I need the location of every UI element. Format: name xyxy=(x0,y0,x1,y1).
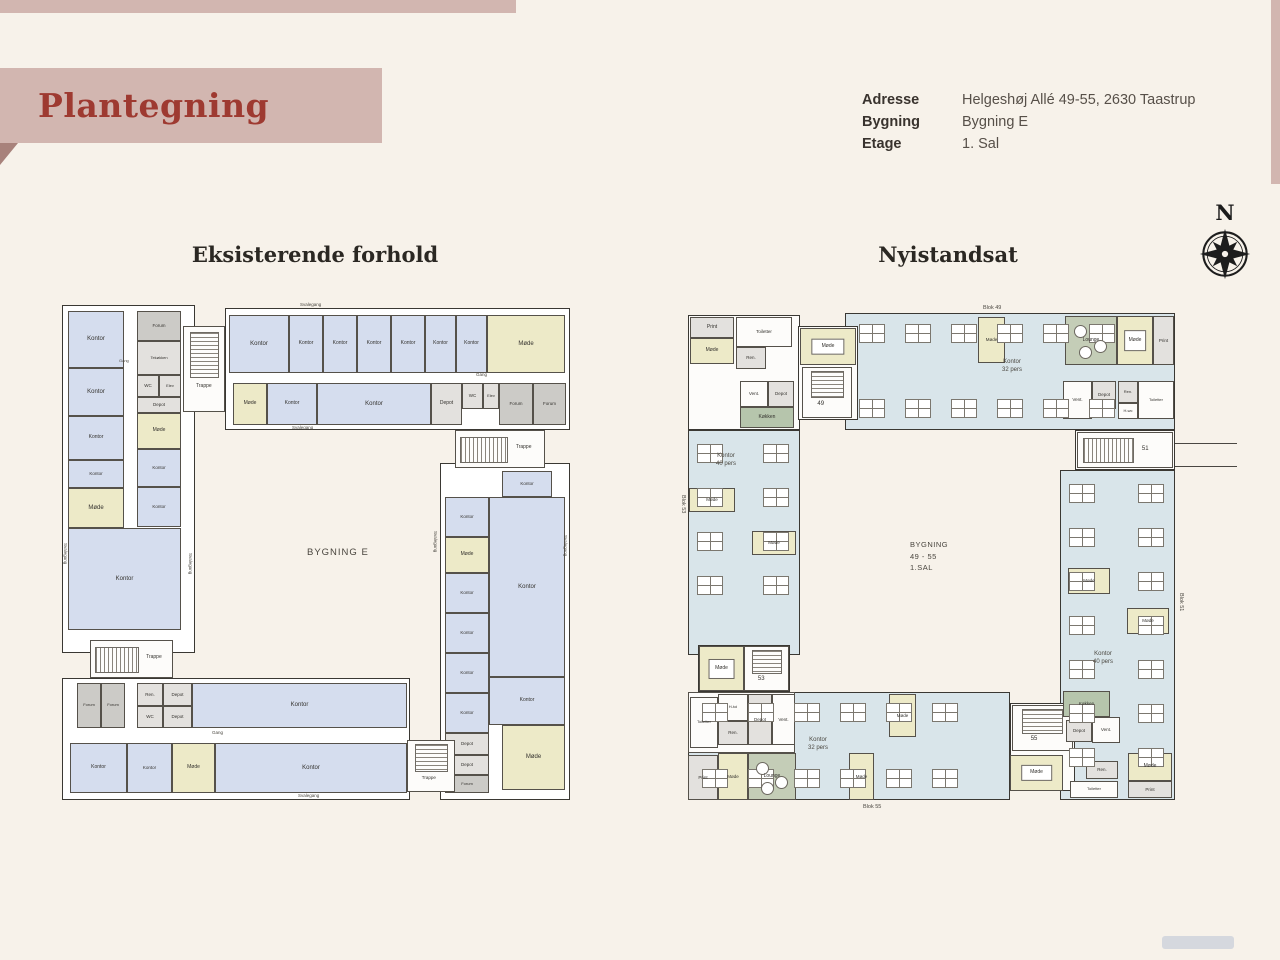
stairwell: 53 xyxy=(744,646,789,691)
stair-label: Trappe xyxy=(196,384,212,390)
room-label: Lounge xyxy=(764,774,781,780)
desk-cluster xyxy=(886,769,912,788)
info-value-bygning: Bygning E xyxy=(962,111,1280,133)
room: Kontor xyxy=(215,743,407,793)
corridor-connector xyxy=(1175,443,1237,444)
compass-north-label: N xyxy=(1199,200,1251,225)
compass-rose-icon xyxy=(1199,228,1251,280)
room-label: Kontor xyxy=(464,341,479,347)
plan-label: Blok 55 xyxy=(863,804,881,811)
room-label: Lounge xyxy=(1083,338,1100,344)
room: Kontor xyxy=(445,497,489,537)
room: Kontor xyxy=(70,743,127,793)
room: Kontor xyxy=(289,315,323,373)
plan-label: Svalegang xyxy=(432,531,438,552)
plan-label: Svalegang xyxy=(562,535,568,556)
stair-label: 53 xyxy=(758,676,765,683)
plan-label: Svalegang xyxy=(298,793,319,799)
room-label: Møde xyxy=(727,774,739,779)
room-label: Kontor xyxy=(302,765,320,772)
top-accent-bar xyxy=(0,0,516,13)
desk-cluster xyxy=(697,532,723,551)
stairwell: 49 xyxy=(802,367,852,418)
room-label: Møde xyxy=(244,401,257,407)
room-label: Kontor xyxy=(365,401,383,408)
room: H-wc xyxy=(1118,403,1138,419)
section-title-existing: Eksisterende forhold xyxy=(115,242,515,267)
room: Møde xyxy=(445,537,489,573)
room: Kontor xyxy=(68,416,124,460)
room-label: Møde xyxy=(768,540,780,545)
room: Kontor xyxy=(68,368,124,416)
room-label: Køkken xyxy=(1079,701,1094,706)
room: Depot xyxy=(163,706,192,728)
room-label: Møde xyxy=(856,774,868,779)
room-label: WC xyxy=(146,714,154,719)
room-label: Print xyxy=(1159,338,1168,343)
room-label: Print xyxy=(698,775,707,780)
room: Kontor xyxy=(68,460,124,488)
room: Depot xyxy=(431,383,462,425)
room: Møde xyxy=(502,725,565,790)
plan-label: Blok 51 xyxy=(1177,593,1184,611)
room-label: Depot xyxy=(171,692,183,697)
room-label: Forum xyxy=(83,703,95,708)
room: Møde xyxy=(1117,316,1153,365)
room: Forum xyxy=(137,311,181,341)
room-label: Elev xyxy=(487,394,495,399)
room-label: Kontor xyxy=(143,765,156,770)
desk-cluster xyxy=(859,324,885,343)
room-label: H-toi xyxy=(729,705,737,710)
room: WC xyxy=(137,706,163,728)
desk-cluster xyxy=(840,703,866,722)
room: Forum xyxy=(499,383,533,425)
room: Tekøkken xyxy=(137,341,181,375)
stairs-icon xyxy=(1022,709,1063,734)
plan-label: Svalegang xyxy=(187,553,193,574)
room-label: Kontor xyxy=(367,341,382,347)
room: Kontor xyxy=(323,315,357,373)
desk-cluster xyxy=(951,324,977,343)
desk-cluster xyxy=(1043,399,1069,418)
room-label: Forum xyxy=(107,703,119,708)
room-label: Kontor xyxy=(116,576,134,583)
room-label: Forum xyxy=(509,401,522,406)
room-label: Møde xyxy=(526,754,541,761)
banner-fold xyxy=(0,143,18,165)
room-label: Møde xyxy=(1129,338,1142,344)
room: Ren. xyxy=(736,347,766,369)
desk-cluster xyxy=(1138,484,1164,503)
desk-cluster xyxy=(932,769,958,788)
stairs-icon xyxy=(460,437,508,463)
room-label: Depot xyxy=(754,717,766,722)
room-label: Kontor xyxy=(520,481,533,486)
room-label: Depot xyxy=(461,762,473,767)
room-label: Møde xyxy=(1144,764,1157,770)
plan-label: Kontor 40 pers xyxy=(1093,651,1113,667)
room: Print xyxy=(1128,781,1172,798)
stair-label: 49 xyxy=(817,401,824,408)
room-label: Ren. xyxy=(728,730,738,735)
room-label: Møde xyxy=(1083,578,1095,583)
stairwell: Trappe xyxy=(455,430,545,468)
room-label: Toiletter xyxy=(756,329,772,334)
desk-cluster xyxy=(763,444,789,463)
info-row-bygning: Bygning Bygning E xyxy=(862,111,1280,133)
room-label: Forum xyxy=(152,323,165,328)
room-label: Møde xyxy=(706,348,719,354)
info-value-adresse: Helgeshøj Allé 49-55, 2630 Taastrup xyxy=(962,89,1280,111)
room-label: Kontor xyxy=(299,341,314,347)
desk-cluster xyxy=(1138,704,1164,723)
room: Kontor xyxy=(357,315,391,373)
room: Kontor xyxy=(489,497,565,677)
room: Forum xyxy=(101,683,125,728)
room: Kontor xyxy=(445,693,489,733)
info-label-etage: Etage xyxy=(862,133,962,155)
room: Forum xyxy=(77,683,101,728)
room-label: Kontor xyxy=(91,765,106,771)
room-label: Kontor xyxy=(89,435,104,441)
info-panel: Adresse Helgeshøj Allé 49-55, 2630 Taast… xyxy=(843,78,1280,165)
room-label: Forum xyxy=(543,401,556,406)
desk-cluster xyxy=(697,576,723,595)
room: Kontor xyxy=(127,743,172,793)
info-label-adresse: Adresse xyxy=(862,89,962,111)
room: Kontor xyxy=(456,315,487,373)
room-label: Møde xyxy=(518,341,533,348)
stairwell: 51 xyxy=(1077,432,1173,468)
room-label: Depot xyxy=(440,401,453,407)
plan-label: Blok 53 xyxy=(679,495,686,513)
room-label: Kontor xyxy=(87,389,105,396)
stair-label: Trappe xyxy=(422,775,436,780)
round-table-icon xyxy=(1079,346,1092,359)
room: Vent. xyxy=(740,381,768,407)
room-label: Kontor xyxy=(433,341,448,347)
desk-cluster xyxy=(1069,704,1095,723)
desk-cluster xyxy=(763,488,789,507)
stairs-icon xyxy=(415,744,447,772)
plan-label: Kontor 40 pers xyxy=(716,453,736,469)
room-label: Depot xyxy=(461,741,473,746)
desk-cluster xyxy=(1069,660,1095,679)
room-label: Ren. xyxy=(746,355,756,360)
room: Print xyxy=(1153,316,1174,365)
room-label: Kontor xyxy=(250,341,268,348)
room: Kontor xyxy=(425,315,456,373)
room: Kontor xyxy=(391,315,425,373)
desk-cluster xyxy=(997,324,1023,343)
room-label: Kontor xyxy=(285,401,300,407)
room: Elev xyxy=(159,375,181,397)
floorplan-right: PrintMødeToiletterRen.Vent.DepotKøkkenMø… xyxy=(680,303,1240,823)
room: Kontor xyxy=(68,311,124,368)
stairwell: Trappe xyxy=(90,640,173,678)
room-label: Print xyxy=(707,325,717,331)
desk-cluster xyxy=(1069,616,1095,635)
plan-label: Kontor 32 pers xyxy=(808,737,828,753)
room: Depot xyxy=(137,397,181,413)
room: Ren. xyxy=(1118,381,1138,403)
plan-label: Svalegang xyxy=(292,425,313,431)
room: Toiletter xyxy=(1138,381,1174,419)
room-label: Kontor xyxy=(401,341,416,347)
room-label: Toiletter xyxy=(1087,787,1101,792)
room: Forum xyxy=(533,383,566,425)
room-label: Møde xyxy=(187,765,200,771)
room-label: H-wc xyxy=(1123,409,1132,414)
room-label: Depot xyxy=(1073,728,1085,733)
info-row-etage: Etage 1. Sal xyxy=(862,133,1280,155)
stairs-icon xyxy=(1083,438,1134,462)
room-label: Toiletter xyxy=(697,720,711,725)
stairs-icon xyxy=(811,371,845,398)
plan-label: Gang xyxy=(119,358,129,363)
room: Kontor xyxy=(229,315,289,373)
room-label: Kontor xyxy=(152,504,165,509)
room: Vent. xyxy=(1092,717,1120,743)
room: Møde xyxy=(690,338,734,364)
room: Kontor xyxy=(267,383,317,425)
room: Toiletter xyxy=(736,317,792,347)
desk-cluster xyxy=(997,399,1023,418)
room-label: Depot xyxy=(1098,392,1110,397)
room: Toiletter xyxy=(1070,781,1118,798)
room: Depot xyxy=(163,683,192,706)
desk-cluster xyxy=(1043,324,1069,343)
plan-label: Gang xyxy=(476,372,487,378)
room: Elev xyxy=(483,383,499,409)
page-title: Plantegning xyxy=(38,86,269,125)
room: Depot xyxy=(768,381,794,407)
plan-label: Gang xyxy=(212,730,223,736)
room: Møde xyxy=(800,328,856,365)
desk-cluster xyxy=(763,576,789,595)
room-label: Kontor xyxy=(460,670,473,675)
room-label: Forum xyxy=(461,782,473,787)
room-label: Ren. xyxy=(1124,390,1132,395)
room: Print xyxy=(690,317,734,338)
desk-cluster xyxy=(951,399,977,418)
room: Kontor xyxy=(137,487,181,527)
desk-cluster xyxy=(905,324,931,343)
room: Køkken xyxy=(740,407,794,428)
corridor-connector xyxy=(1175,466,1237,467)
plan-label: Kontor 32 pers xyxy=(1002,359,1022,375)
room-label: Kontor xyxy=(87,336,105,343)
room-label: Ren. xyxy=(145,692,155,697)
round-table-icon xyxy=(761,782,774,795)
plan-label: Svalegang xyxy=(62,543,68,564)
room: Møde xyxy=(68,488,124,528)
room-label: Kontor xyxy=(291,702,309,709)
room-label: Depot xyxy=(153,402,165,407)
stair-label: Trappe xyxy=(146,655,162,661)
room-label: Kontor xyxy=(460,590,473,595)
room: WC xyxy=(137,375,159,397)
stairs-icon xyxy=(95,647,139,673)
room: Kontor xyxy=(317,383,431,425)
room-label: Kontor xyxy=(333,341,348,347)
room: Kontor xyxy=(445,573,489,613)
floorplan-left: KontorKontorKontorKontorKontorKontorKont… xyxy=(62,303,582,823)
desk-cluster xyxy=(794,703,820,722)
room: Kontor xyxy=(445,613,489,653)
room-label: Møde xyxy=(1142,618,1154,623)
desk-cluster xyxy=(1069,748,1095,767)
room: Kontor xyxy=(489,677,565,725)
room: Møde xyxy=(699,646,744,691)
room-label: Kontor xyxy=(460,710,473,715)
room-label: Depot xyxy=(171,714,183,719)
desk-cluster xyxy=(859,399,885,418)
room: Depot xyxy=(1066,720,1092,742)
info-row-adresse: Adresse Helgeshøj Allé 49-55, 2630 Taast… xyxy=(862,89,1280,111)
room-label: Depot xyxy=(775,391,787,396)
desk-cluster xyxy=(932,703,958,722)
stair-label: 51 xyxy=(1142,446,1149,453)
desk-cluster xyxy=(794,769,820,788)
plan-label: Svalegang xyxy=(300,302,321,308)
room-label: Kontor xyxy=(520,698,535,704)
watermark xyxy=(1162,936,1234,949)
stairs-icon xyxy=(752,650,782,674)
room-label: Møde xyxy=(153,428,166,434)
room-label: Kontor xyxy=(152,465,165,470)
room: WC xyxy=(462,383,483,409)
stair-label: Trappe xyxy=(516,445,532,451)
room-label: Ren. xyxy=(1097,767,1107,772)
room-label: Møde xyxy=(822,344,835,350)
room-label: Køkken xyxy=(759,415,776,421)
stairwell: Trappe xyxy=(183,326,225,412)
room: Møde xyxy=(137,413,181,449)
room: Kontor xyxy=(192,683,407,728)
room: Møde xyxy=(1010,755,1063,791)
room: Kontor xyxy=(68,528,181,630)
room-label: Møde xyxy=(461,552,474,558)
room-label: WC xyxy=(144,383,152,388)
room-label: Møde xyxy=(986,337,998,342)
room: Møde xyxy=(487,315,565,373)
room-label: Elev xyxy=(166,384,174,389)
room-label: Vent. xyxy=(1101,727,1111,732)
info-value-etage: 1. Sal xyxy=(962,133,1280,155)
room: Ren. xyxy=(137,683,163,706)
room: Ren. xyxy=(718,721,748,745)
room-label: Vent. xyxy=(1072,397,1082,402)
stairwell: Trappe xyxy=(407,740,455,792)
room-label: WC xyxy=(469,393,477,398)
room-label: Tekøkken xyxy=(150,356,167,361)
info-label-bygning: Bygning xyxy=(862,111,962,133)
desk-cluster xyxy=(1138,660,1164,679)
room: Møde xyxy=(172,743,215,793)
desk-cluster xyxy=(1069,484,1095,503)
room-label: Møde xyxy=(715,666,728,672)
stairs-icon xyxy=(190,332,218,378)
room-label: Kontor xyxy=(460,514,473,519)
room-label: Vent. xyxy=(778,717,788,722)
room-label: Kontor xyxy=(460,630,473,635)
section-title-renovated: Nyistandsat xyxy=(748,242,1148,267)
room: Kontor xyxy=(137,449,181,487)
desk-cluster xyxy=(1138,528,1164,547)
room-label: Møde xyxy=(1030,770,1043,776)
room: Møde xyxy=(233,383,267,425)
desk-cluster xyxy=(1138,572,1164,591)
room-label: Møde xyxy=(88,505,103,512)
courtyard-label: BYGNING E xyxy=(307,546,369,561)
title-banner: Plantegning xyxy=(0,68,382,143)
room-label: Print xyxy=(1145,787,1154,792)
room: Vent. xyxy=(772,694,795,745)
room-label: Kontor xyxy=(89,471,102,476)
room: Kontor xyxy=(502,471,552,497)
room-label: Toiletter xyxy=(1149,398,1163,403)
room-label: Møde xyxy=(897,713,909,718)
room-label: Møde xyxy=(706,497,718,502)
stair-label: 55 xyxy=(1031,736,1038,743)
room-label: Vent. xyxy=(749,391,759,396)
desk-cluster xyxy=(1089,399,1115,418)
plan-label: Blok 49 xyxy=(983,305,1001,312)
desk-cluster xyxy=(1069,528,1095,547)
desk-cluster xyxy=(905,399,931,418)
room: Kontor xyxy=(445,653,489,693)
courtyard-label: BYGNING 49 - 55 1.SAL xyxy=(910,539,948,574)
room-label: Kontor xyxy=(518,584,536,591)
